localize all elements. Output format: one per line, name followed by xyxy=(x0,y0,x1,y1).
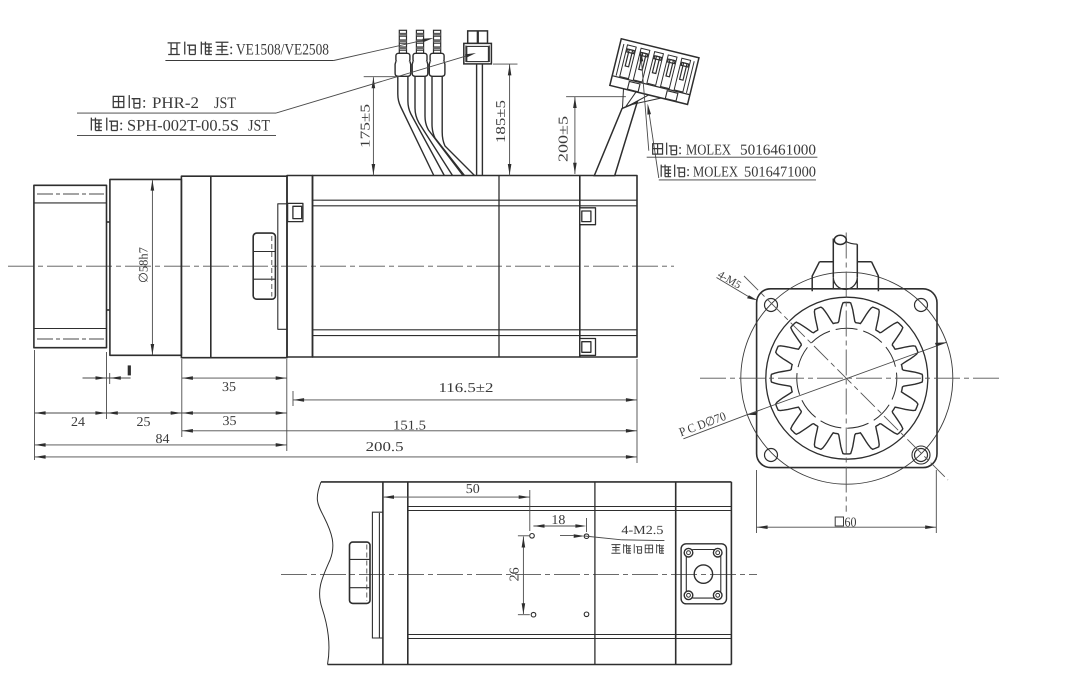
svg-text:50: 50 xyxy=(466,481,480,496)
svg-text::: : xyxy=(119,117,123,134)
svg-text:5016461000: 5016461000 xyxy=(740,143,816,159)
svg-text:175±5: 175±5 xyxy=(358,104,373,148)
svg-text:VE1508/VE2508: VE1508/VE2508 xyxy=(236,42,329,59)
svg-text:JST: JST xyxy=(214,95,236,112)
svg-text:200±5: 200±5 xyxy=(556,116,571,162)
svg-text:26: 26 xyxy=(507,567,522,581)
svg-text::: : xyxy=(229,41,233,58)
svg-text:SPH-002T-00.5S: SPH-002T-00.5S xyxy=(127,118,239,135)
svg-text:151.5: 151.5 xyxy=(393,418,426,433)
svg-text:84: 84 xyxy=(156,431,170,446)
svg-text::: : xyxy=(678,142,682,158)
svg-text::: : xyxy=(686,164,690,180)
svg-text:200.5: 200.5 xyxy=(366,439,404,454)
svg-text:JST: JST xyxy=(248,118,270,135)
svg-text:35: 35 xyxy=(222,379,236,394)
svg-text:25: 25 xyxy=(137,414,151,429)
svg-text:185±5: 185±5 xyxy=(493,100,508,143)
svg-text:35: 35 xyxy=(223,413,237,428)
svg-text:4-M2.5: 4-M2.5 xyxy=(621,523,663,537)
svg-text:24: 24 xyxy=(71,414,85,429)
svg-text:18: 18 xyxy=(551,512,565,527)
svg-text:60: 60 xyxy=(845,515,857,530)
svg-text:116.5±2: 116.5±2 xyxy=(439,380,494,395)
svg-text:∅58h7: ∅58h7 xyxy=(137,247,151,283)
svg-text:MOLEX: MOLEX xyxy=(686,143,731,159)
svg-text:5016471000: 5016471000 xyxy=(744,165,816,181)
svg-text:MOLEX: MOLEX xyxy=(693,165,738,181)
svg-text::: : xyxy=(142,95,146,112)
svg-text:PHR-2: PHR-2 xyxy=(152,95,199,112)
